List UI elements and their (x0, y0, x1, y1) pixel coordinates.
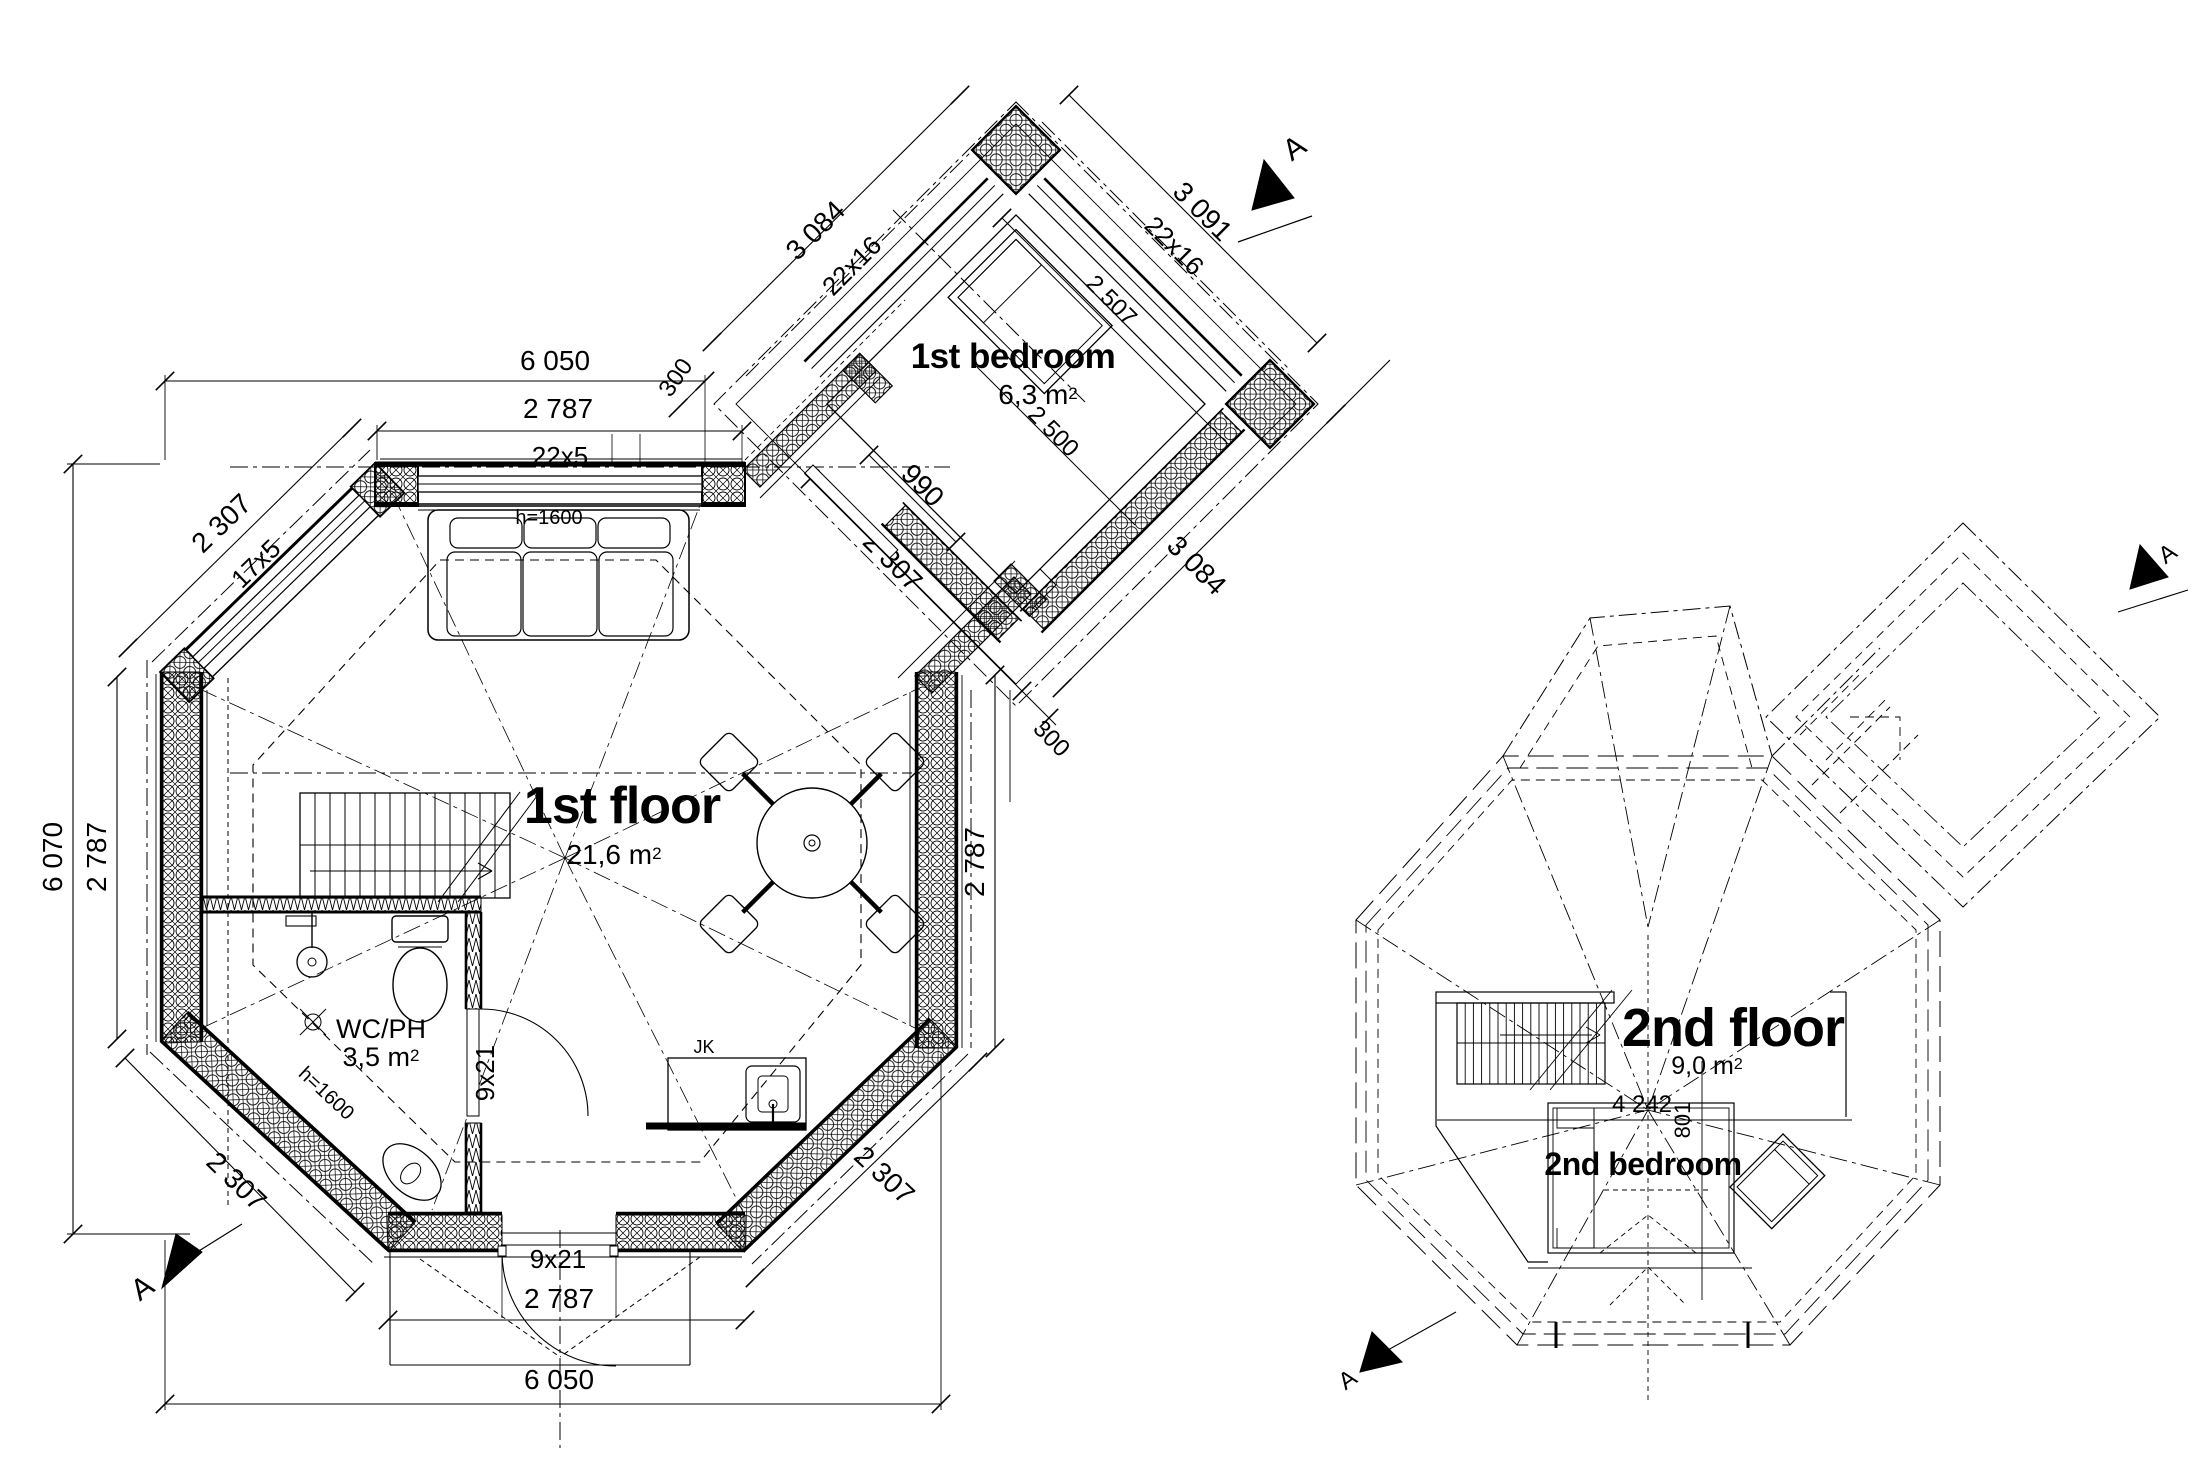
svg-text:JK: JK (693, 1037, 714, 1057)
svg-text:4 242: 4 242 (1612, 1091, 1672, 1118)
svg-text:9x21: 9x21 (470, 1045, 500, 1101)
svg-text:6 050: 6 050 (524, 1364, 594, 1395)
svg-text:9,0 m2: 9,0 m2 (1671, 1052, 1743, 1080)
svg-text:2nd bedroom: 2nd bedroom (1544, 1146, 1741, 1182)
svg-text:6,3 m2: 6,3 m2 (998, 379, 1078, 410)
svg-text:1st bedroom: 1st bedroom (911, 337, 1116, 376)
svg-text:3,5 m2: 3,5 m2 (343, 1042, 420, 1072)
svg-text:2 787: 2 787 (959, 827, 990, 897)
svg-text:2 787: 2 787 (81, 822, 112, 892)
svg-text:21,6 m2: 21,6 m2 (566, 839, 661, 870)
svg-text:2nd floor: 2nd floor (1622, 998, 1845, 1058)
svg-text:2 787: 2 787 (523, 393, 593, 424)
svg-text:6 050: 6 050 (520, 345, 590, 376)
svg-text:WC/PH: WC/PH (336, 1014, 426, 1044)
svg-text:801: 801 (1670, 1102, 1695, 1139)
svg-text:9x21: 9x21 (530, 1244, 586, 1274)
svg-text:2 787: 2 787 (524, 1283, 594, 1314)
svg-text:6 070: 6 070 (37, 822, 68, 892)
svg-text:1st floor: 1st floor (524, 777, 721, 835)
